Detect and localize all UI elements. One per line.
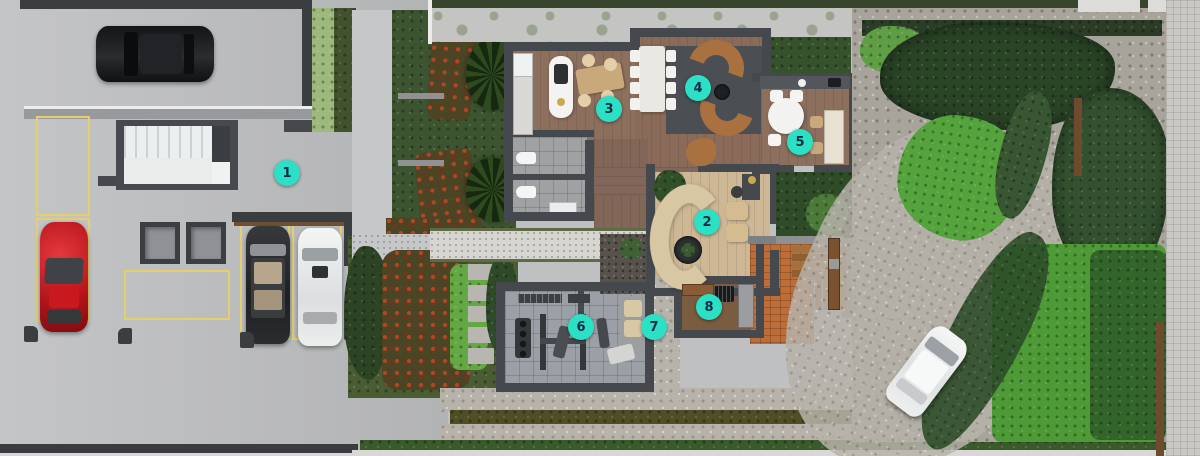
wall-gym-top (496, 282, 654, 291)
planter-box-2 (186, 222, 226, 264)
pergola-beam (232, 212, 350, 222)
breakfast-chair-2 (790, 90, 803, 102)
armchair-1 (726, 202, 748, 220)
bbq-counter-right (738, 284, 754, 328)
curb-stop-1 (24, 326, 38, 342)
marker-8[interactable]: 8 (696, 294, 722, 320)
wall-living-top (698, 164, 778, 172)
sidewalk (1166, 0, 1200, 456)
stair-treads (124, 126, 212, 158)
cooktop (554, 64, 568, 84)
street-wall-top (20, 0, 312, 9)
wood-edge-1 (1074, 98, 1082, 176)
kitchen-stool-2 (604, 58, 617, 71)
wall-gym-bottom (496, 383, 654, 392)
coffee-table-plant (681, 243, 695, 257)
white-car-parked (298, 228, 342, 346)
kitchen-stool-1 (582, 54, 595, 67)
dining-chair-r4 (666, 98, 676, 110)
garden-ledge-2 (398, 160, 444, 166)
wall-bath-bottom (504, 212, 594, 221)
wall-kitchen-top (504, 42, 638, 51)
rear-hedge-line (428, 0, 1172, 8)
wood-planter-cap (829, 259, 839, 269)
marker-6[interactable]: 6 (568, 314, 594, 340)
breakfast-desk (824, 110, 844, 164)
courtyard-plant (620, 238, 642, 260)
living-side-table (731, 186, 743, 198)
wall-stub-right (284, 120, 312, 132)
parking-space-1 (36, 116, 90, 216)
marker-7[interactable]: 7 (641, 314, 667, 340)
wood-planter-1 (828, 238, 840, 310)
wall-bath-right (585, 140, 594, 221)
garden-path (352, 10, 394, 234)
white-car-rear-window (303, 312, 337, 324)
dark-car-parked (246, 226, 290, 344)
bottom-walk (352, 450, 1200, 456)
wall-segment-1 (1078, 0, 1140, 12)
black-car-rear-window (184, 34, 194, 74)
stair-inner-wall (212, 126, 230, 162)
dining-chair-l2 (630, 66, 640, 78)
site-plan: 12345678 (0, 0, 1200, 456)
marker-4[interactable]: 4 (685, 75, 711, 101)
gym-dumbbell-rack (515, 318, 531, 358)
stair-landing (124, 158, 212, 184)
white-car-windshield (302, 248, 338, 261)
curb-stop-3 (240, 332, 254, 348)
wood-edge-2 (1156, 322, 1164, 456)
living-coffee-table (674, 236, 702, 264)
living-lamp (748, 176, 756, 184)
desk-stool-1 (810, 116, 823, 128)
cover-c-shade (1090, 250, 1166, 440)
black-car-windshield (124, 32, 138, 76)
pergola-wood-trim (234, 222, 348, 226)
refrigerator (513, 53, 533, 77)
black-car-roof (140, 34, 182, 74)
lounger-1 (624, 300, 642, 317)
curved-seat (686, 138, 716, 166)
red-car-roof (49, 286, 79, 308)
marker-2[interactable]: 2 (694, 209, 720, 235)
lounger-2 (624, 320, 642, 337)
sink-fixture (557, 98, 565, 106)
curb-stop-2 (118, 328, 132, 344)
kitchen-island (549, 56, 573, 118)
dining-chair-r1 (666, 50, 676, 62)
white-car-sunroof (312, 266, 328, 278)
red-car (40, 222, 88, 332)
curb-bar-bottom (0, 444, 358, 453)
entry-stairs (116, 120, 238, 190)
dining-chair-l4 (630, 98, 640, 110)
dining-chair-r2 (666, 66, 676, 78)
toilet-1 (516, 152, 536, 164)
terrace-divider (428, 0, 432, 44)
breakfast-chair-3 (768, 134, 781, 146)
dining-garden-bed (771, 37, 851, 73)
marker-3[interactable]: 3 (596, 96, 622, 122)
marker-1[interactable]: 1 (274, 160, 300, 186)
support-sink (798, 79, 806, 87)
red-car-windshield (44, 258, 84, 284)
wall-patio-divider (756, 236, 764, 336)
marker-5[interactable]: 5 (787, 129, 813, 155)
parking-space-3 (124, 270, 230, 320)
wall-bath-divider (510, 174, 588, 180)
kitchen-stool-3 (578, 94, 591, 107)
wall-dining-top (630, 28, 770, 37)
wall-stub-left (98, 176, 116, 186)
breakfast-chair-1 (770, 90, 783, 102)
lounge-side-table (714, 84, 730, 100)
red-car-rear-window (47, 310, 81, 323)
dark-car-front-seats (254, 262, 282, 284)
wall-gym-left (496, 282, 505, 392)
stair-upper-landing (212, 162, 230, 184)
garden-ledge-1 (398, 93, 444, 99)
dining-chair-r3 (666, 82, 676, 94)
support-cooktop (828, 78, 841, 87)
gym-rack-2 (568, 294, 590, 303)
planter-box-1 (140, 222, 180, 264)
armchair-2 (726, 224, 748, 242)
dining-table (639, 46, 665, 112)
toilet-2 (516, 186, 536, 198)
hedge (312, 8, 334, 132)
wall-bbq-bottom (674, 330, 764, 338)
dark-car-glass-roof (251, 258, 285, 318)
dark-car-rear-seats (254, 290, 282, 310)
dining-chair-l3 (630, 82, 640, 94)
dining-chair-l1 (630, 50, 640, 62)
gym-rack-1 (518, 294, 562, 303)
side-wall (302, 0, 312, 118)
dark-car-windshield (250, 244, 286, 256)
black-car (96, 26, 214, 82)
